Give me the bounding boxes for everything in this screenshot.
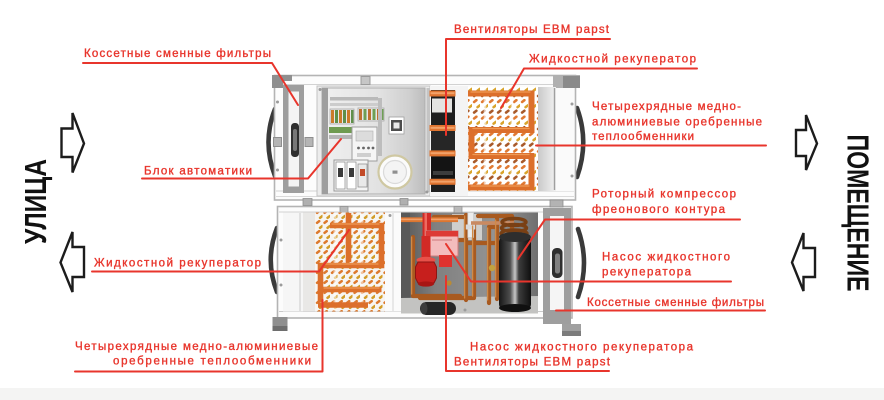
svg-text:Вентиляторы EBM papst: Вентиляторы EBM papst: [454, 24, 610, 36]
svg-text:Четырехрядные медно-алюминиевы: Четырехрядные медно-алюминиевые: [75, 341, 318, 353]
svg-text:УЛИЦА: УЛИЦА: [18, 159, 53, 244]
svg-text:Коссетные сменные фильтры: Коссетные сменные фильтры: [84, 48, 271, 60]
svg-text:Вентиляторы EBM papst: Вентиляторы EBM papst: [454, 357, 611, 369]
svg-text:рекуператора: рекуператора: [602, 267, 692, 279]
svg-text:фреонового контура: фреонового контура: [592, 204, 726, 216]
svg-text:Блок автоматики: Блок автоматики: [144, 166, 252, 178]
svg-text:Насос жидкостного рекуператора: Насос жидкостного рекуператора: [470, 342, 694, 354]
svg-text:Коссетные сменные фильтры: Коссетные сменные фильтры: [587, 297, 764, 309]
svg-text:теплообменники: теплообменники: [592, 131, 694, 143]
svg-text:Жидкостной рекуператор: Жидкостной рекуператор: [529, 54, 696, 66]
svg-text:Насос жидкостного: Насос жидкостного: [602, 252, 730, 264]
svg-text:ПОМЕЩЕНИЕ: ПОМЕЩЕНИЕ: [841, 135, 876, 292]
svg-text:Жидкостной рекуператор: Жидкостной рекуператор: [94, 258, 261, 270]
svg-text:оребренные теплообменники: оребренные теплообменники: [113, 356, 311, 368]
svg-text:алюминиевые оребренные: алюминиевые оребренные: [592, 117, 762, 129]
svg-text:Четырехрядные медно-: Четырехрядные медно-: [592, 101, 741, 113]
